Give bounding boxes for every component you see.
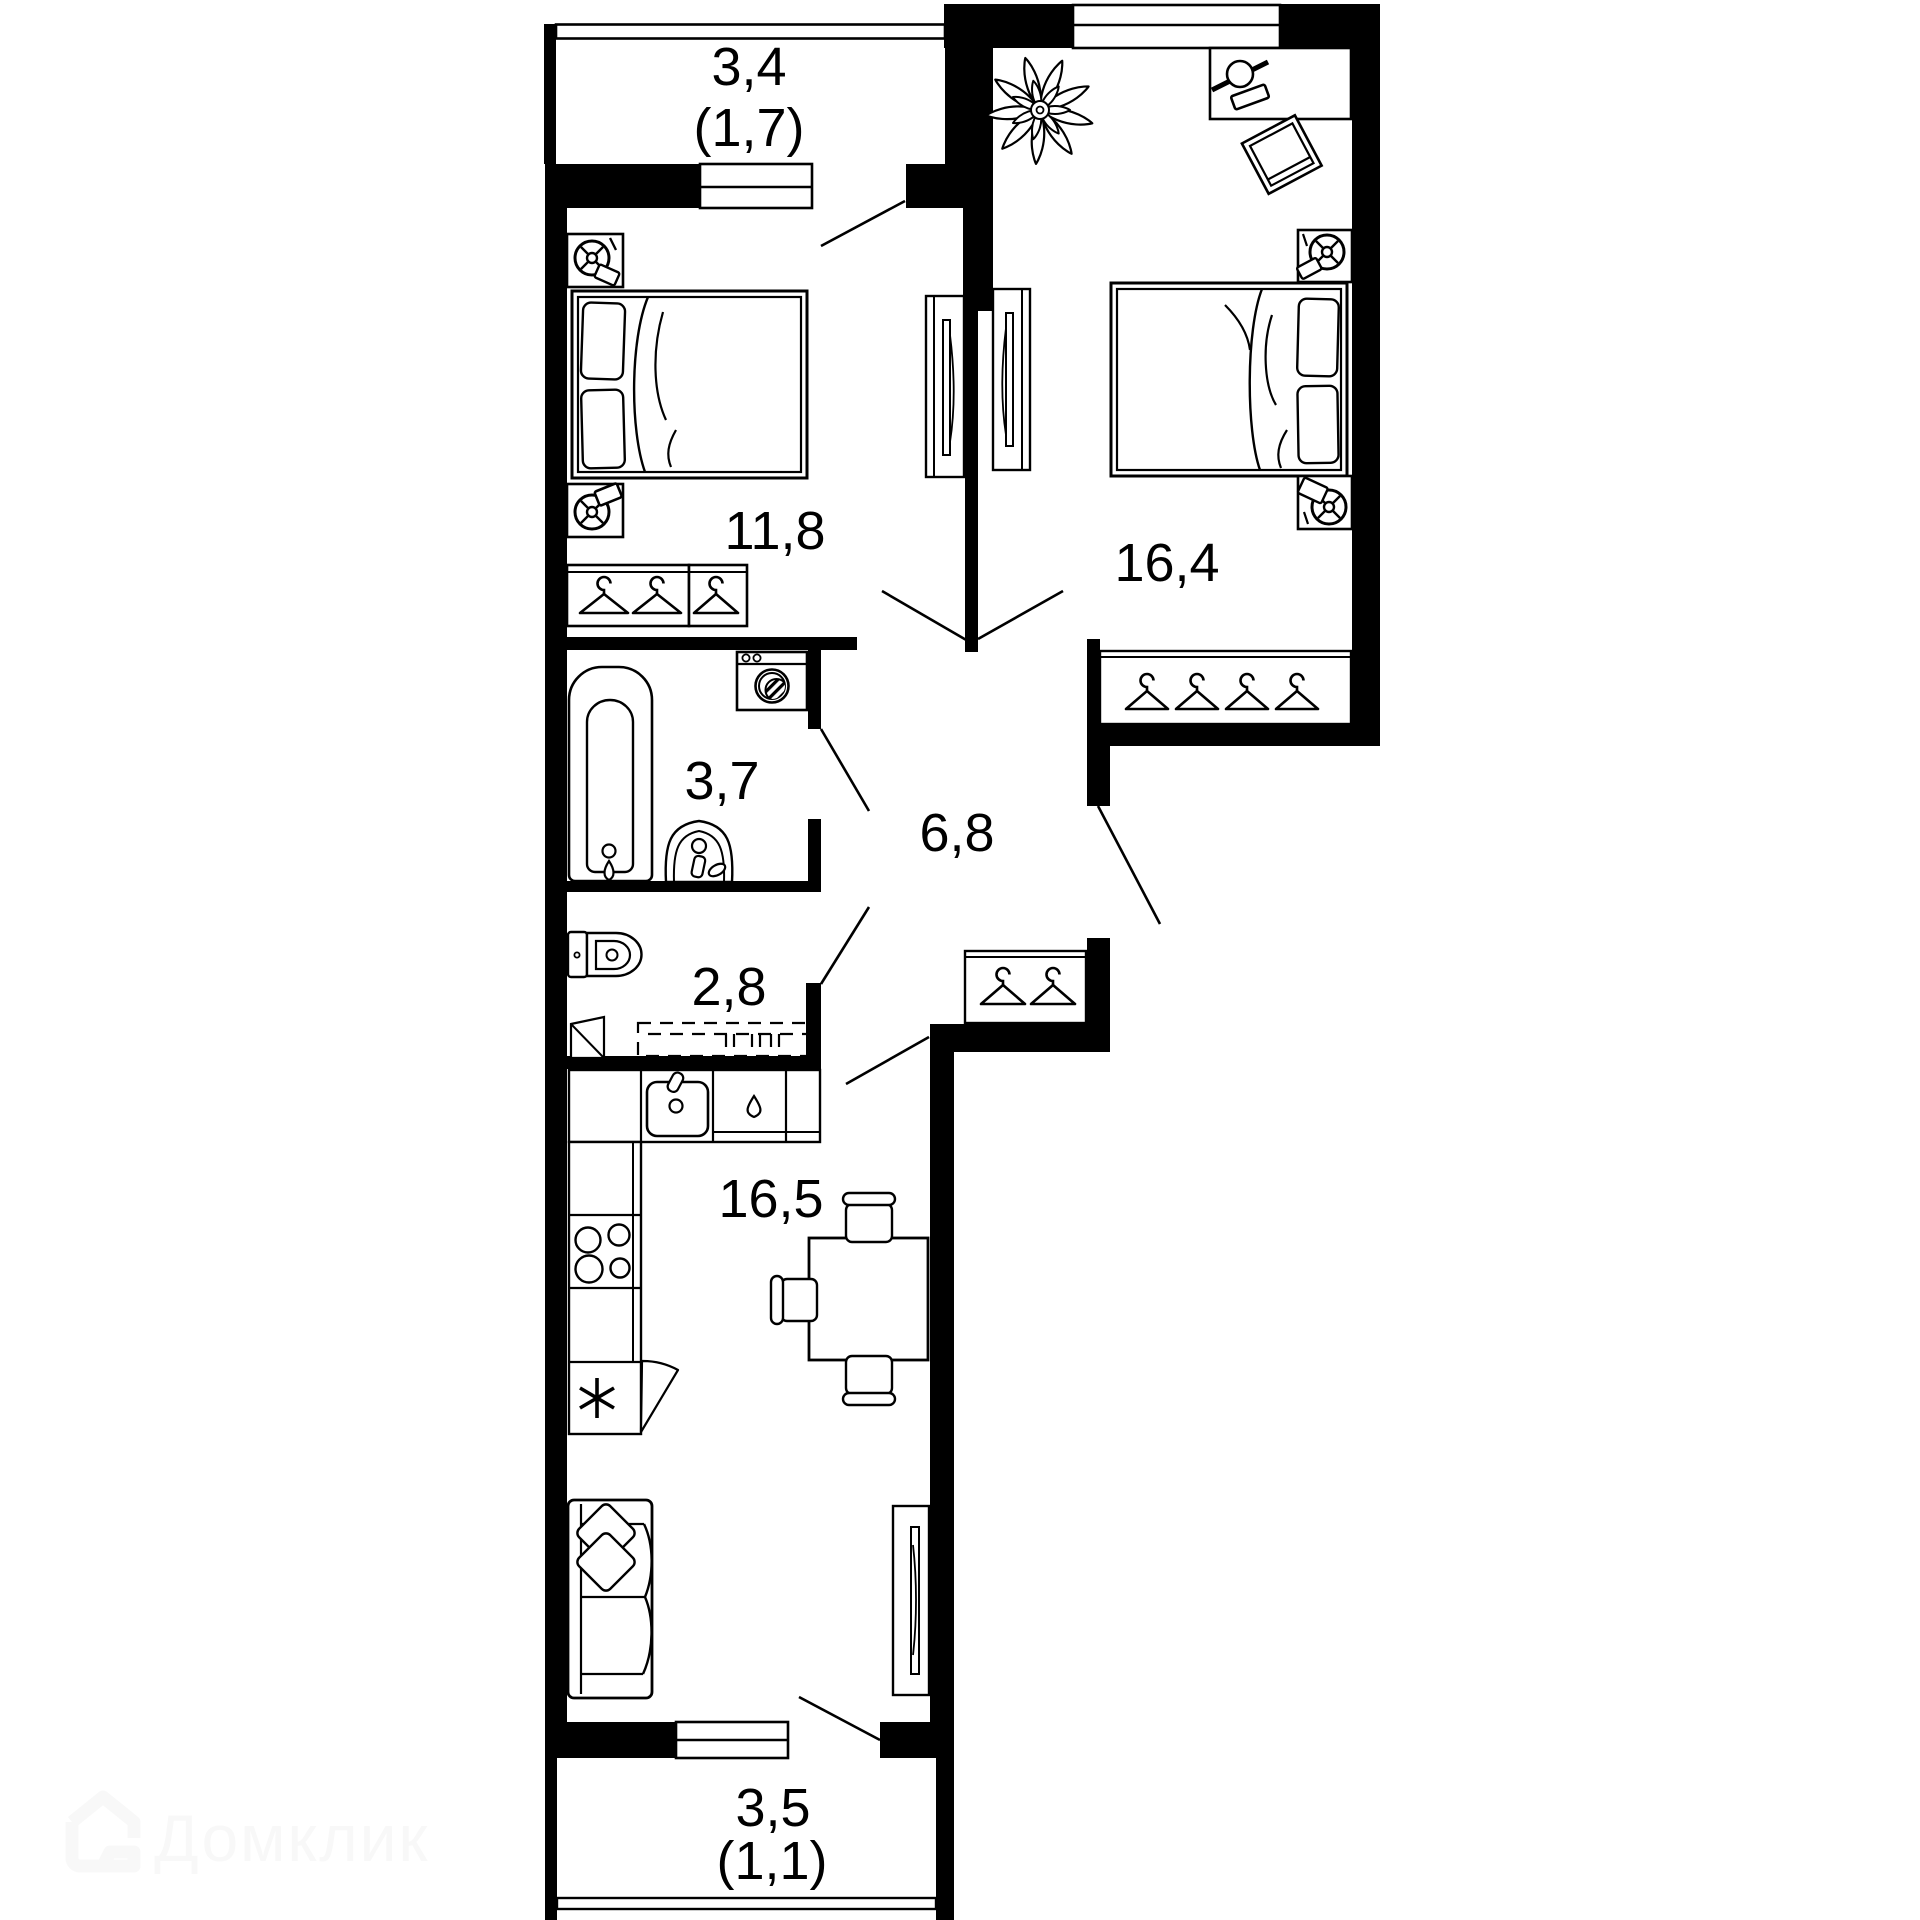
svg-text:3,7: 3,7	[684, 751, 759, 811]
svg-text:(1,1): (1,1)	[716, 1831, 827, 1891]
svg-text:2,8: 2,8	[691, 957, 766, 1017]
svg-text:3,4: 3,4	[711, 37, 786, 97]
svg-text:11,8: 11,8	[724, 501, 825, 561]
svg-text:16,5: 16,5	[718, 1169, 823, 1229]
svg-text:6,8: 6,8	[919, 803, 994, 863]
svg-text:Домклик: Домклик	[154, 1801, 429, 1875]
svg-text:(1,7): (1,7)	[693, 98, 804, 158]
svg-text:3,5: 3,5	[735, 1778, 810, 1838]
svg-text:16,4: 16,4	[1114, 533, 1219, 593]
